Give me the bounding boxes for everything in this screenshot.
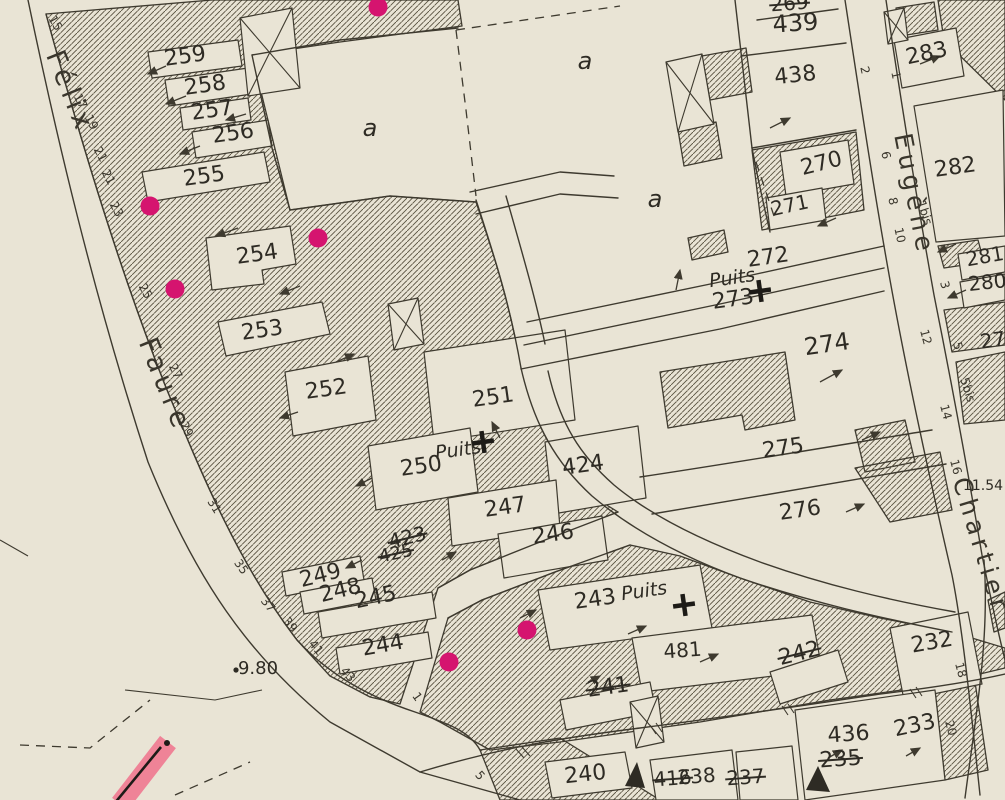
survey-dot <box>166 280 185 299</box>
elevation-value: 11.54 <box>963 478 1003 494</box>
house-number: 10 <box>891 226 908 244</box>
survey-dot <box>309 229 328 248</box>
house-number: 8 <box>885 196 900 206</box>
x-box <box>388 298 424 350</box>
parcel-number-label: 279 <box>978 325 1005 354</box>
house-number: 3 <box>937 279 953 290</box>
area-letter-label: a <box>648 185 663 213</box>
cadastral-map-sheet: FélixFaureEugèneChartieraaa2592582572562… <box>0 0 1005 800</box>
x-box <box>630 696 664 748</box>
highlighter-mark <box>114 740 170 800</box>
house-number: 2 <box>857 65 872 75</box>
parcel-number-label: 436 <box>827 721 871 749</box>
house-number: 6 <box>878 150 893 160</box>
house-number: 12 <box>917 328 934 346</box>
parcel-number-label: 438 <box>773 61 817 90</box>
map-canvas: FélixFaureEugèneChartieraaa2592582572562… <box>0 0 1005 800</box>
parcel-number-label: 275 <box>761 433 806 464</box>
mark-endpoint-dot <box>164 740 170 746</box>
parcel-number-label: 238 <box>677 763 717 790</box>
parcel-number-label: 240 <box>563 760 607 789</box>
house-number: 14 <box>937 403 954 421</box>
area-letter-label: a <box>363 114 378 142</box>
house-number: 16 <box>947 458 964 476</box>
parcel-number-label: 280 <box>967 268 1005 296</box>
elevation-value: 9.80 <box>238 658 278 679</box>
area-letter-label: a <box>578 47 593 75</box>
parcel-number-label: 481 <box>663 637 703 664</box>
survey-dot <box>518 621 537 640</box>
house-number: 5 <box>472 768 488 783</box>
parcel-number-label: 276 <box>778 495 823 526</box>
survey-dot <box>440 653 459 672</box>
parcel-number-label: 274 <box>802 327 851 361</box>
survey-dot <box>141 197 160 216</box>
